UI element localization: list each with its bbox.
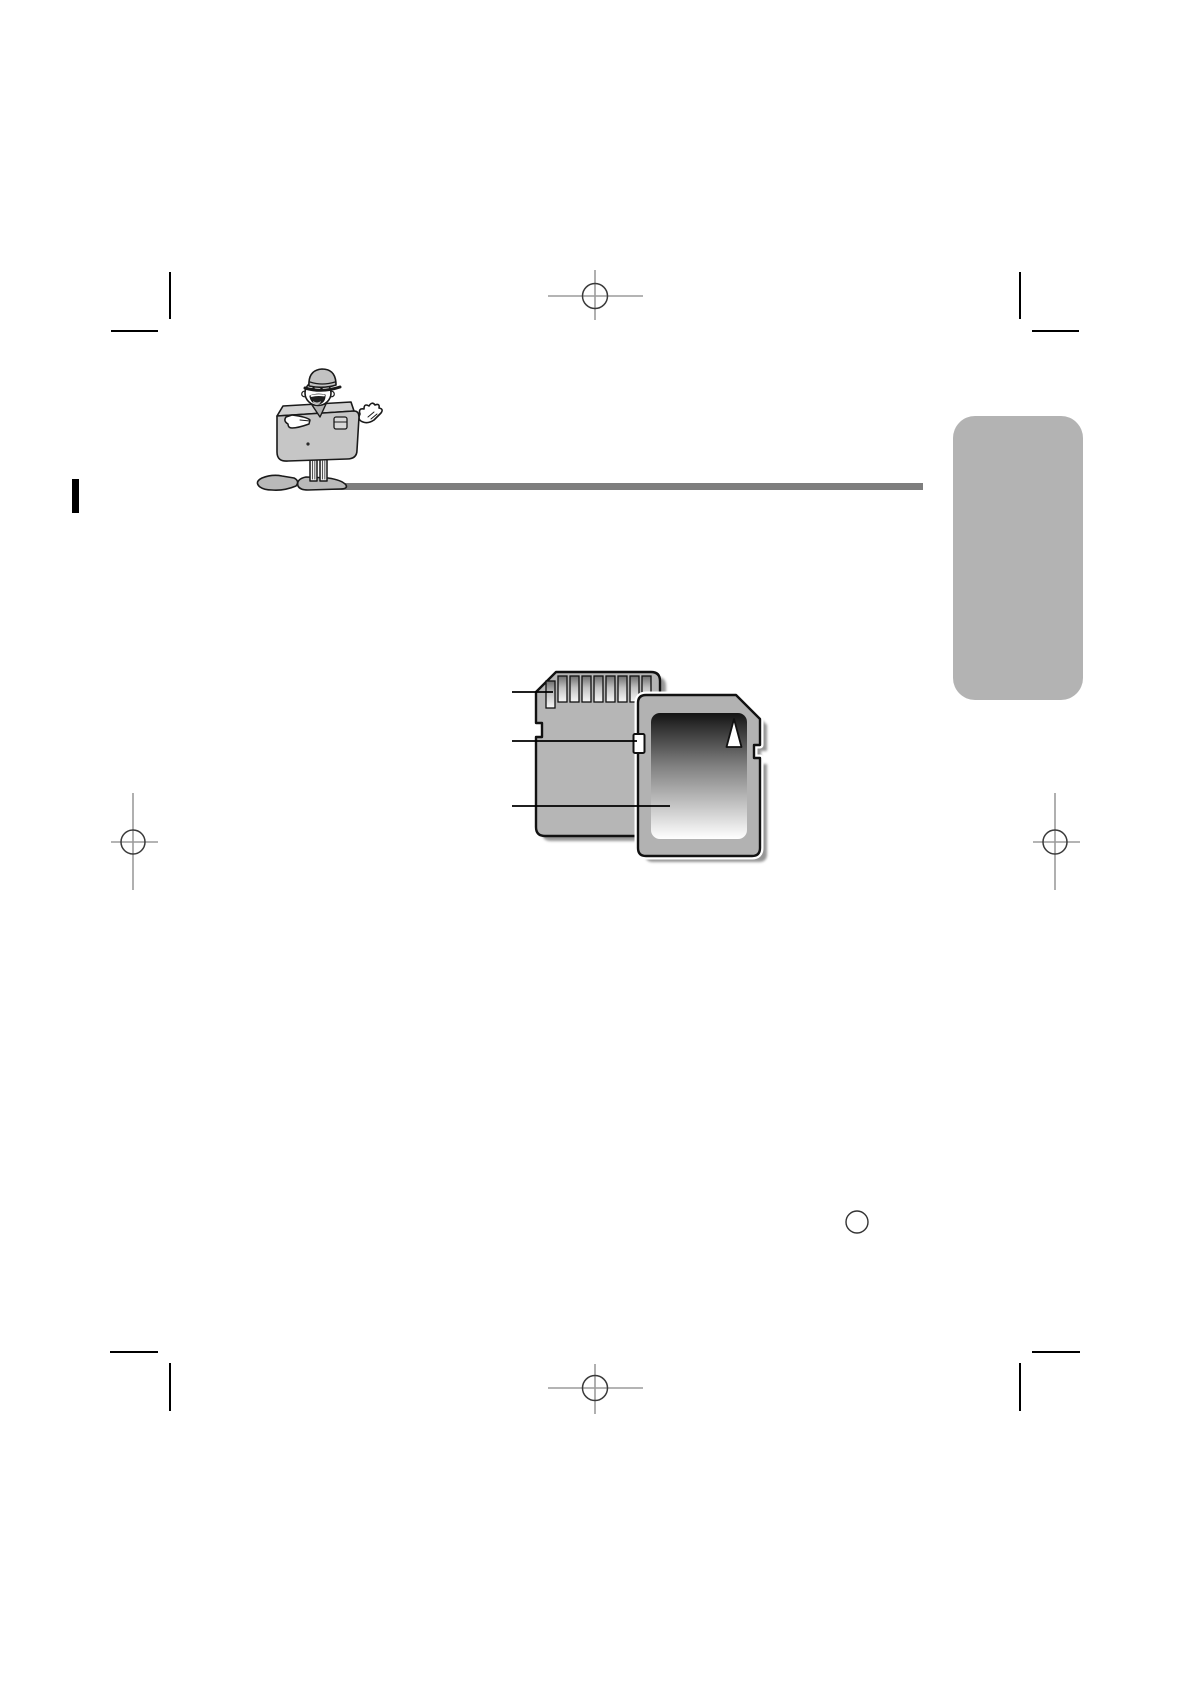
contact-pin bbox=[558, 676, 567, 702]
contact-pin-offset bbox=[546, 681, 555, 708]
registration-target-left-middle bbox=[111, 793, 158, 890]
mascot-camera-button bbox=[306, 442, 309, 445]
contact-pin bbox=[606, 676, 615, 702]
registration-target-top-center bbox=[548, 270, 643, 320]
write-protect-switch bbox=[634, 734, 645, 753]
page-number-circle bbox=[846, 1211, 868, 1233]
contact-pin bbox=[582, 676, 591, 702]
crop-mark-top-left bbox=[111, 272, 170, 331]
crop-mark-bottom-left bbox=[110, 1352, 170, 1411]
sd-memory-card-figure bbox=[505, 655, 795, 880]
crop-mark-top-right bbox=[1020, 272, 1079, 331]
contact-pin bbox=[618, 676, 627, 702]
manual-page bbox=[0, 0, 1190, 1684]
registration-target-right-middle bbox=[1033, 793, 1080, 890]
mascot-teeth bbox=[312, 395, 325, 396]
section-divider-rule bbox=[312, 483, 923, 490]
mascot-right-hand bbox=[359, 403, 382, 422]
spine-mark-bar bbox=[72, 479, 79, 513]
mascot-camera-pocket bbox=[334, 417, 347, 429]
contact-pin bbox=[570, 676, 579, 702]
registration-target-bottom-center bbox=[548, 1364, 643, 1414]
mascot-left-shoe bbox=[257, 475, 297, 490]
crop-mark-bottom-right bbox=[1020, 1352, 1080, 1411]
section-side-tab bbox=[953, 416, 1083, 700]
camera-mascot-icon bbox=[250, 360, 390, 495]
contact-pin bbox=[594, 676, 603, 702]
